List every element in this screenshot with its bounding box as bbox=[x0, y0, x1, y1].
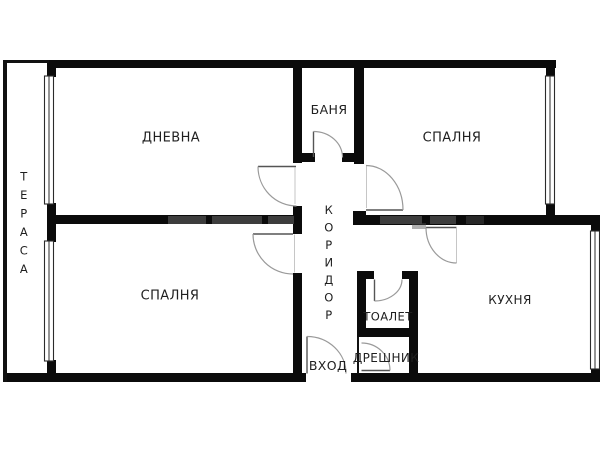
floorplan: ТЕРАСА ДНЕВНА БАНЯ СПАЛНЯ КОРИДОР СПАЛНЯ… bbox=[0, 0, 600, 450]
wall-kitchen-right-b bbox=[591, 368, 600, 382]
floorplan-drawing bbox=[0, 0, 600, 450]
walls bbox=[3, 60, 600, 382]
wall-bottom-left bbox=[3, 373, 306, 382]
wall-bath-bottom-left bbox=[293, 153, 315, 162]
door-bedroom-bottom bbox=[253, 234, 295, 274]
door-toilet bbox=[375, 280, 403, 302]
room-label-toilet: ТОАЛЕТ bbox=[363, 311, 412, 323]
door-bathroom bbox=[314, 132, 343, 158]
room-label-bedroom-bottom: СПАЛНЯ bbox=[141, 290, 200, 303]
door-kitchen bbox=[426, 228, 457, 264]
wall-bottom-right bbox=[351, 373, 600, 382]
door-bedroom-top bbox=[366, 166, 403, 211]
wall-toilet-right bbox=[409, 271, 418, 382]
room-label-entrance: ВХОД bbox=[309, 360, 347, 373]
window-bedroom-top bbox=[546, 76, 555, 204]
wall-bath-left bbox=[293, 60, 302, 163]
doors bbox=[253, 132, 457, 374]
room-label-bedroom-top: СПАЛНЯ bbox=[423, 132, 482, 145]
room-label-terrace: ТЕРАСА bbox=[17, 170, 29, 281]
room-label-bathroom: БАНЯ bbox=[311, 104, 348, 117]
door-living-room bbox=[258, 167, 297, 207]
wall-toilet-left bbox=[357, 271, 366, 337]
terrace-top-line bbox=[3, 60, 49, 63]
wall-corridor-right-block bbox=[353, 211, 366, 225]
wall-toilet-bottom bbox=[357, 328, 418, 337]
wall-bath-right bbox=[354, 60, 364, 164]
room-label-corridor: КОРИДОР bbox=[322, 203, 334, 326]
room-label-living-room: ДНЕВНА bbox=[142, 132, 200, 145]
window-bedroom-bottom bbox=[45, 241, 54, 361]
wall-right-upper-a bbox=[546, 60, 555, 77]
window-living-room bbox=[45, 76, 54, 204]
wall-corridor-left-lower bbox=[293, 273, 302, 382]
wall-corridor-left-block bbox=[293, 206, 302, 234]
terrace-left-line bbox=[3, 60, 7, 382]
wall-bath-bottom-right bbox=[342, 153, 364, 162]
wall-toilet-top-left bbox=[357, 271, 374, 279]
room-label-closet: ДРЕШНИК bbox=[353, 352, 419, 364]
window-kitchen bbox=[591, 231, 600, 369]
room-label-kitchen: КУХНЯ bbox=[488, 294, 531, 306]
wall-kitchen-right-a bbox=[591, 215, 600, 232]
